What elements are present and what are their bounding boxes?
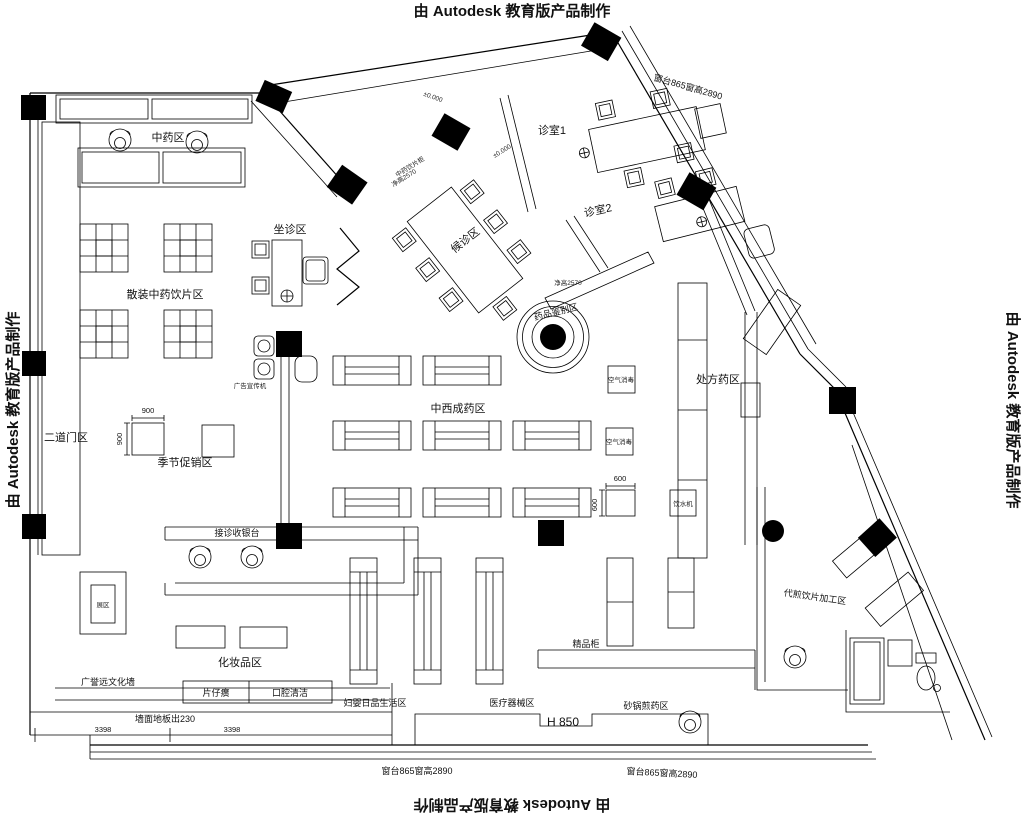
sitting-consult-zone: 坐诊区	[252, 222, 359, 306]
window-note-bottom-right: 窗台865窗高2890	[626, 765, 698, 780]
window-note-top: 窗台865窗高2890	[652, 71, 723, 101]
dim-600: 600	[614, 474, 627, 483]
watermark-bottom: 由 Autodesk 教育版产品制作	[414, 796, 611, 814]
height-note: 净高2570	[554, 278, 582, 287]
shelf-label-oral: 口腔清洁	[272, 687, 308, 698]
air-sterilizer-label: 空气消毒	[608, 375, 635, 384]
area-label-bulk-herb: 散装中药饮片区	[127, 287, 204, 301]
air-sterilizer-label: 空气消毒	[606, 437, 633, 446]
cosmetics-zone: 化妆品区 片仔癀 口腔清洁	[176, 626, 332, 703]
area-label-second-door: 二道门区	[44, 430, 88, 444]
note-wall-floor: 墙面地板出230	[135, 713, 195, 724]
herb-cabinet	[164, 310, 212, 358]
floor-plan-canvas: 二道门区 中药区 散装中药饮片区 坐诊区 候诊区 诊室1	[0, 0, 1024, 819]
chair	[252, 277, 269, 294]
drug-id-round-counter: 药品鉴别区	[517, 301, 589, 373]
equipment-boxes: 空气消毒 空气消毒 600 600 饮水机	[590, 366, 696, 516]
boutique-counter: 精品柜 砂锅煎药区	[538, 558, 755, 733]
staff-figure	[784, 646, 806, 668]
level-marker: ±0.000	[492, 143, 513, 160]
small-annotations: ±0.000 中药饮片柜 净高2570 ±0.000 净高2570 窗台865窗…	[381, 71, 723, 779]
watermark-left: 由 Autodesk 教育版产品制作	[4, 312, 22, 509]
window-note-bottom-left: 窗台865窗高2890	[381, 765, 452, 776]
cashier-figure	[189, 546, 211, 568]
washroom	[850, 638, 941, 704]
dim-3398: 3398	[95, 725, 112, 734]
area-label-mother-baby: 妇婴日品生活区	[343, 697, 406, 708]
area-label-decoction: 砂锅煎药区	[623, 700, 668, 711]
area-label-patent-med: 中西成药区	[431, 402, 486, 415]
waiting-area	[390, 174, 553, 344]
dim-600: 600	[590, 499, 599, 512]
processing-zone: 代煎饮片加工区	[783, 529, 923, 668]
chair	[252, 241, 269, 258]
dim-900: 900	[142, 406, 155, 415]
display-label: 展区	[97, 601, 111, 609]
area-label-waiting: 候诊区	[448, 224, 483, 255]
watermark-right: 由 Autodesk 教育版产品制作	[1004, 312, 1022, 509]
chinese-herb-room: 中药区 散装中药饮片区	[56, 95, 252, 358]
culture-wall-zone: 展区 广誉远文化墙 墙面地板出230 3398 3398	[80, 572, 240, 734]
dim-3398: 3398	[224, 725, 241, 734]
cashier-figure	[241, 546, 263, 568]
area-label-culture-wall: 广誉远文化墙	[81, 676, 135, 687]
herb-cabinet	[80, 310, 128, 358]
autodesk-watermarks: 由 Autodesk 教育版产品制作 由 Autodesk 教育版产品制作 由 …	[4, 2, 1022, 814]
daily-goods-gondolas: 妇婴日品生活区 医疗器械区 H 850	[343, 558, 579, 729]
area-label-boutique: 精品柜	[572, 638, 599, 649]
otc-gondola-shelves: 中西成药区	[333, 356, 591, 517]
area-label-herb: 中药区	[152, 131, 185, 144]
room-label-2: 诊室2	[583, 200, 613, 220]
area-label-prescription: 处方药区	[696, 372, 740, 386]
folding-screen	[337, 228, 359, 305]
area-label-cashier: 接诊收银台	[214, 527, 259, 538]
ad-machine-label: 广告宣传机	[234, 381, 267, 390]
area-label-cosmetics: 化妆品区	[218, 655, 262, 669]
area-label-promo: 季节促销区	[158, 455, 213, 469]
area-label-devices: 医疗器械区	[489, 697, 534, 708]
level-marker: ±0.000	[422, 91, 443, 104]
herb-cabinet	[164, 224, 212, 272]
watermark-top: 由 Autodesk 教育版产品制作	[414, 2, 611, 20]
pharmacy-floor-plan: 二道门区 中药区 散装中药饮片区 坐诊区 候诊区 诊室1	[0, 0, 1024, 819]
shelf-label-pzh: 片仔癀	[202, 687, 229, 698]
staff-figure	[186, 131, 208, 153]
room-label-1: 诊室1	[538, 123, 566, 137]
dim-900: 900	[115, 433, 124, 446]
ad-machine-zone: 广告宣传机	[234, 336, 317, 390]
area-label-processing: 代煎饮片加工区	[783, 587, 847, 607]
note-h850: H 850	[547, 715, 579, 729]
water-dispenser-label: 饮水机	[673, 499, 693, 508]
area-label-consult: 坐诊区	[274, 222, 307, 236]
herb-cabinet	[80, 224, 128, 272]
seasonal-promo-zone: 900 900 季节促销区	[115, 406, 234, 469]
